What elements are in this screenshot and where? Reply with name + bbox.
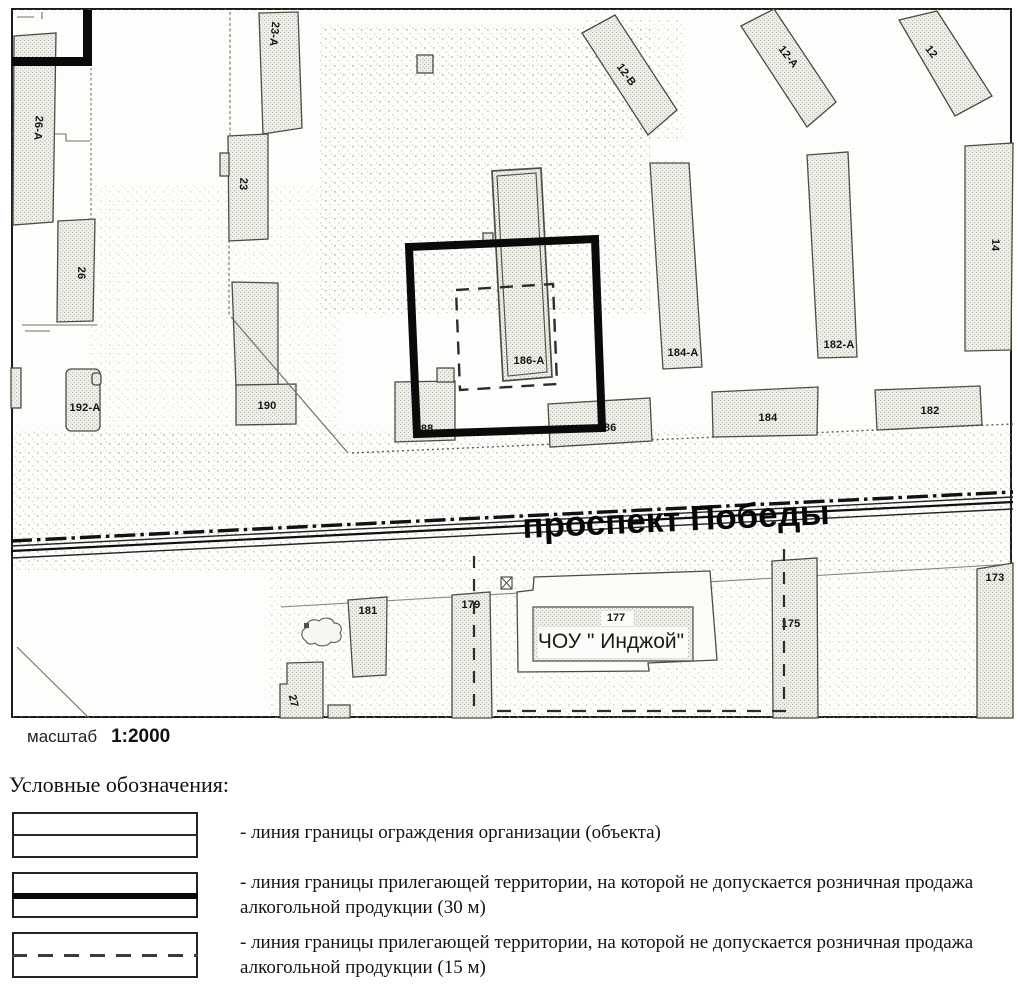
building-label-184: 184: [759, 412, 778, 424]
scale-word: масштаб: [27, 727, 97, 746]
building-label-190: 190: [258, 400, 277, 412]
building-label-chou-indzhoy: ЧОУ " Инджой": [538, 630, 684, 654]
building-label-173: 173: [986, 572, 1005, 584]
legend-heading: Условные обозначения:: [9, 772, 229, 798]
building-label-186: 186: [598, 422, 617, 434]
map-canvas: [11, 8, 1012, 718]
building-label-186a: 186-А: [514, 355, 545, 367]
thick-solid-line-sample: [12, 893, 198, 899]
legend-swatch-solid-thick: [12, 872, 198, 918]
building-label-182: 182: [921, 405, 940, 417]
legend-item-text-2: - линия границы прилегающей территории, …: [240, 870, 985, 920]
building-label-23: 23: [237, 177, 249, 190]
building-label-177: 177: [607, 612, 625, 624]
building-label-26: 26: [75, 267, 87, 280]
building-label-182a: 182-А: [824, 339, 855, 351]
legend-item-text-3: - линия границы прилегающей территории, …: [240, 930, 985, 980]
legend-item-text-1: - линия границы ограждения организации (…: [240, 820, 985, 845]
thin-solid-line-sample: [12, 834, 198, 836]
building-label-184a: 184-А: [668, 347, 699, 359]
building-label-192a: 192-А: [70, 402, 101, 414]
building-label-179: 179: [462, 599, 481, 611]
building-label-188: 188: [415, 423, 434, 435]
dashed-line-sample: [12, 954, 198, 957]
plan-document: 26-А 26 23-А 23 192-А 190 188 186 186-А …: [0, 0, 1023, 991]
building-label-181: 181: [359, 605, 378, 617]
building-label-175: 175: [782, 618, 801, 630]
scale-value: 1:2000: [111, 726, 170, 747]
legend-swatch-dashed: [12, 932, 198, 978]
legend-swatch-solid-thin: [12, 812, 198, 858]
scale-caption: масштаб1:2000: [27, 726, 170, 748]
building-label-23a: 23-А: [267, 21, 282, 47]
building-label-26a: 26-А: [31, 115, 45, 140]
building-label-27: 27: [286, 694, 300, 709]
building-label-14: 14: [989, 238, 1001, 251]
